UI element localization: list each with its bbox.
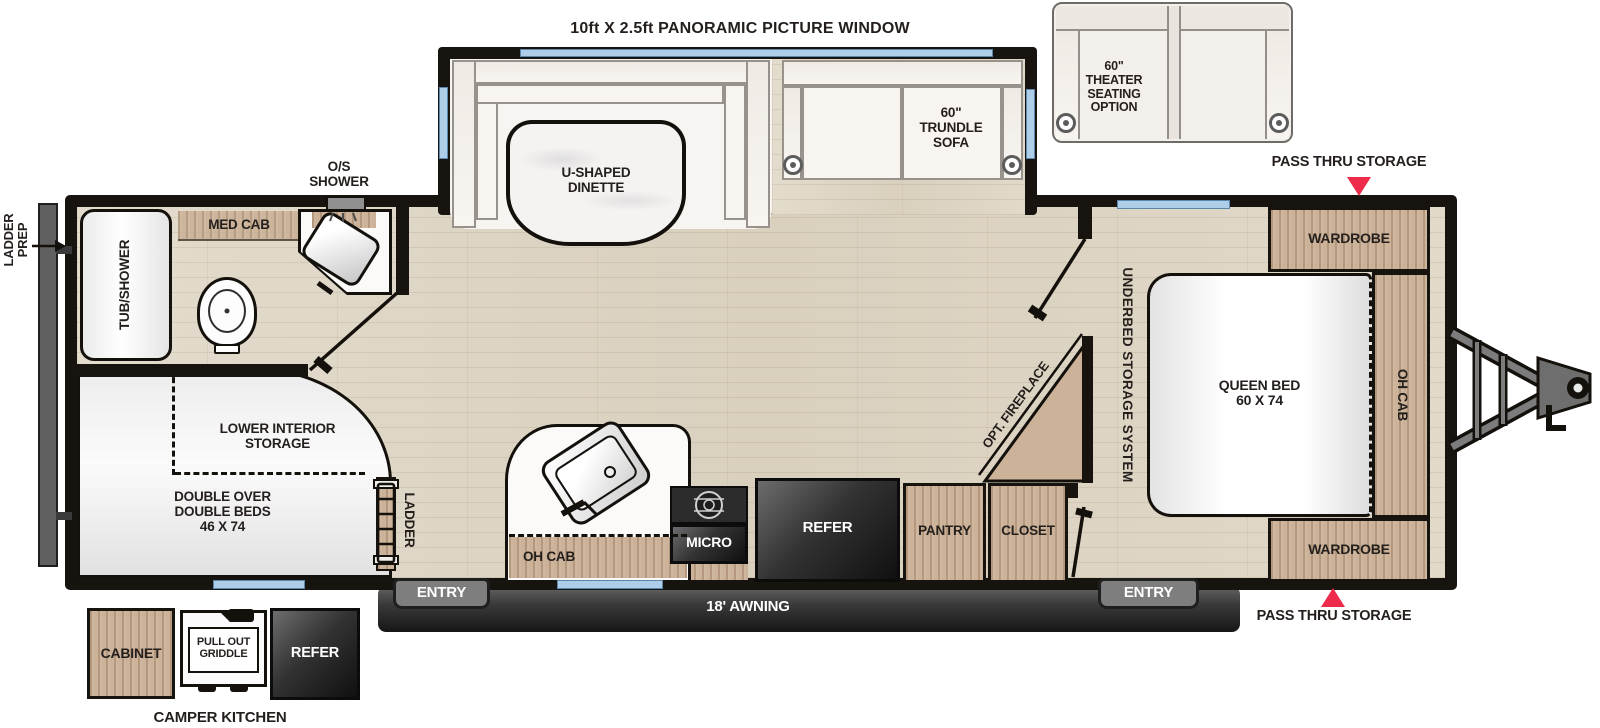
closet-label: CLOSET xyxy=(990,524,1066,539)
lower-storage-dash-v xyxy=(77,368,175,475)
camper-cabinet-label: CABINET xyxy=(89,646,173,661)
pantry-label: PANTRY xyxy=(905,524,984,539)
bedroom-window xyxy=(1117,200,1230,209)
slide-right-window xyxy=(1026,89,1035,159)
med-cab-label: MED CAB xyxy=(180,218,298,233)
dinette-bench-back-left xyxy=(452,60,476,228)
kitchen-window xyxy=(557,580,663,589)
griddle-label: PULL OUT GRIDDLE xyxy=(189,636,258,660)
queen-bed-label: QUEEN BED 60 X 74 xyxy=(1172,378,1347,409)
double-beds-label: DOUBLE OVER DOUBLE BEDS 46 X 74 xyxy=(140,490,305,535)
rear-bumper xyxy=(38,203,58,567)
camper-kitchen-label: CAMPER KITCHEN xyxy=(138,710,302,727)
lower-storage-label: LOWER INTERIOR STORAGE xyxy=(205,422,350,452)
panoramic-window xyxy=(520,49,993,57)
toilet-seat xyxy=(208,289,246,333)
cooktop xyxy=(670,486,748,524)
kitchen-ohcab-label: OH CAB xyxy=(512,550,586,565)
refrigerator-label: REFER xyxy=(757,520,898,537)
pass-thru-arrow-top xyxy=(1347,177,1371,196)
dinette-label: U-SHAPED DINETTE xyxy=(516,166,676,196)
pass-thru-bottom-label: PASS THRU STORAGE xyxy=(1248,609,1420,625)
bed-oh-cab-label: OH CAB xyxy=(1393,351,1409,439)
sofa-seat xyxy=(802,86,902,180)
dinette-seat-left xyxy=(476,84,498,220)
ladder-panel xyxy=(376,477,396,571)
underbed-storage-label: UNDERBED STORAGE SYSTEM xyxy=(1118,223,1134,527)
ladder-label: LADDER xyxy=(400,476,416,564)
tub-shower-label: TUB/SHOWER xyxy=(118,240,134,330)
dinette-bench-back-top xyxy=(452,60,770,84)
wardrobe-top-label: WARDROBE xyxy=(1272,231,1426,246)
sink-drain xyxy=(604,466,616,478)
toilet-base xyxy=(214,344,240,354)
bumper-arm xyxy=(56,246,72,254)
floorplan-canvas: 18' AWNING LADDER PREP 10ft X 2.5ft PANO… xyxy=(0,0,1600,728)
theater-console xyxy=(1167,6,1181,139)
dinette-seat-right xyxy=(724,84,746,220)
lower-storage-dash-h xyxy=(175,472,365,475)
sofa-arm-left xyxy=(782,86,802,180)
bumper-arm xyxy=(56,512,72,520)
os-shower-head xyxy=(326,196,366,211)
theater-arm-right xyxy=(1265,31,1289,139)
pass-thru-top-label: PASS THRU STORAGE xyxy=(1263,155,1435,171)
slide-left-window xyxy=(439,87,448,159)
bath-bottom-wall xyxy=(70,364,308,377)
microwave-label: MICRO xyxy=(672,535,746,550)
wardrobe-bottom-label: WARDROBE xyxy=(1272,542,1426,557)
entry-right-label: ENTRY xyxy=(1098,585,1199,602)
hitch xyxy=(1452,333,1590,447)
bunk-window xyxy=(213,580,305,589)
pass-thru-arrow-bottom xyxy=(1321,588,1345,607)
awning-label: 18' AWNING xyxy=(648,599,848,616)
griddle-foot xyxy=(198,685,216,692)
trundle-sofa-label: 60" TRUNDLE SOFA xyxy=(898,106,1004,151)
os-shower-label: O/S SHOWER xyxy=(297,160,381,190)
ladder-prep-label: LADDER PREP xyxy=(2,196,34,284)
camper-refer-label: REFER xyxy=(272,646,358,662)
sofa-arm-right xyxy=(1002,86,1023,180)
bath-wall-stub xyxy=(396,207,409,295)
dinette-bench-back-right xyxy=(746,60,770,228)
sofa-back xyxy=(782,60,1023,86)
dinette-seat-top xyxy=(476,84,724,104)
griddle-foot xyxy=(230,685,248,692)
panoramic-window-label: 10ft X 2.5ft PANORAMIC PICTURE WINDOW xyxy=(545,20,935,38)
entry-left-label: ENTRY xyxy=(393,585,490,602)
kitchen-ohcab-dash xyxy=(509,534,687,537)
theater-label: 60" THEATER SEATING OPTION xyxy=(1062,60,1166,115)
